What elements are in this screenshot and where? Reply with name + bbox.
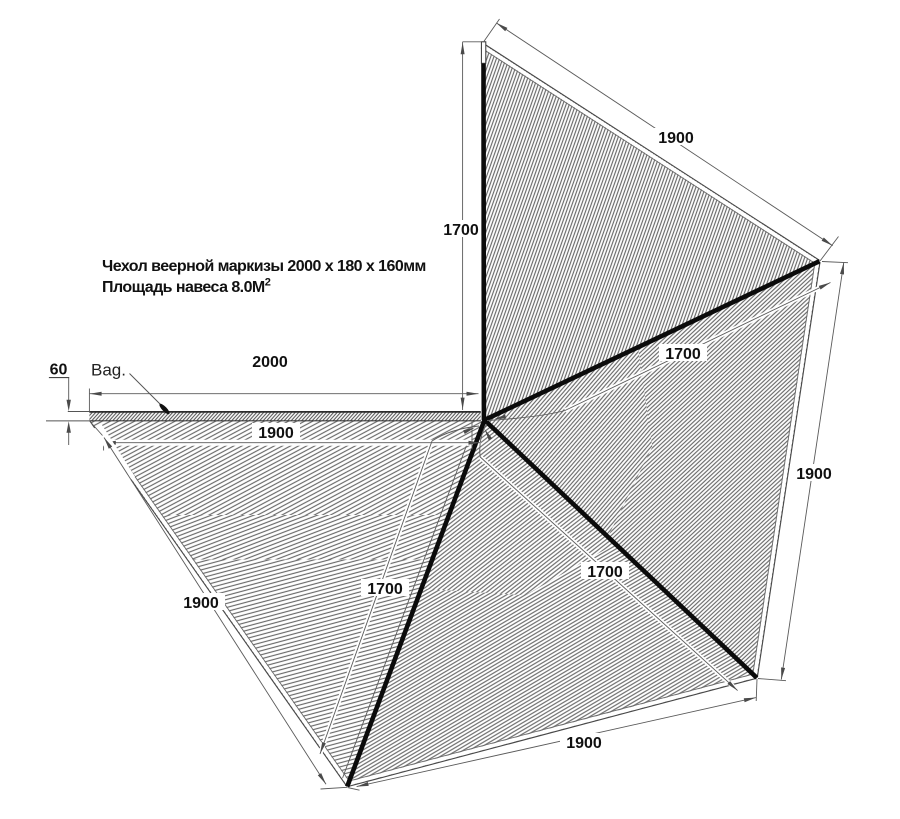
svg-text:1900: 1900	[658, 130, 694, 147]
svg-text:60: 60	[50, 362, 68, 379]
svg-text:2000: 2000	[252, 354, 288, 371]
svg-text:1900: 1900	[183, 595, 219, 612]
svg-text:Площадь навеса 8.0М2: Площадь навеса 8.0М2	[102, 277, 271, 297]
svg-text:1700: 1700	[367, 581, 403, 598]
svg-text:1900: 1900	[258, 425, 294, 442]
svg-text:1700: 1700	[665, 346, 701, 363]
svg-text:1700: 1700	[587, 564, 623, 581]
svg-text:Чехол веерной маркизы 2000 х 1: Чехол веерной маркизы 2000 х 180 х 160мм	[102, 258, 426, 275]
svg-text:1900: 1900	[796, 466, 832, 483]
svg-text:1900: 1900	[566, 735, 602, 752]
svg-text:Bag.: Bag.	[91, 361, 126, 380]
svg-text:1700: 1700	[443, 222, 479, 239]
